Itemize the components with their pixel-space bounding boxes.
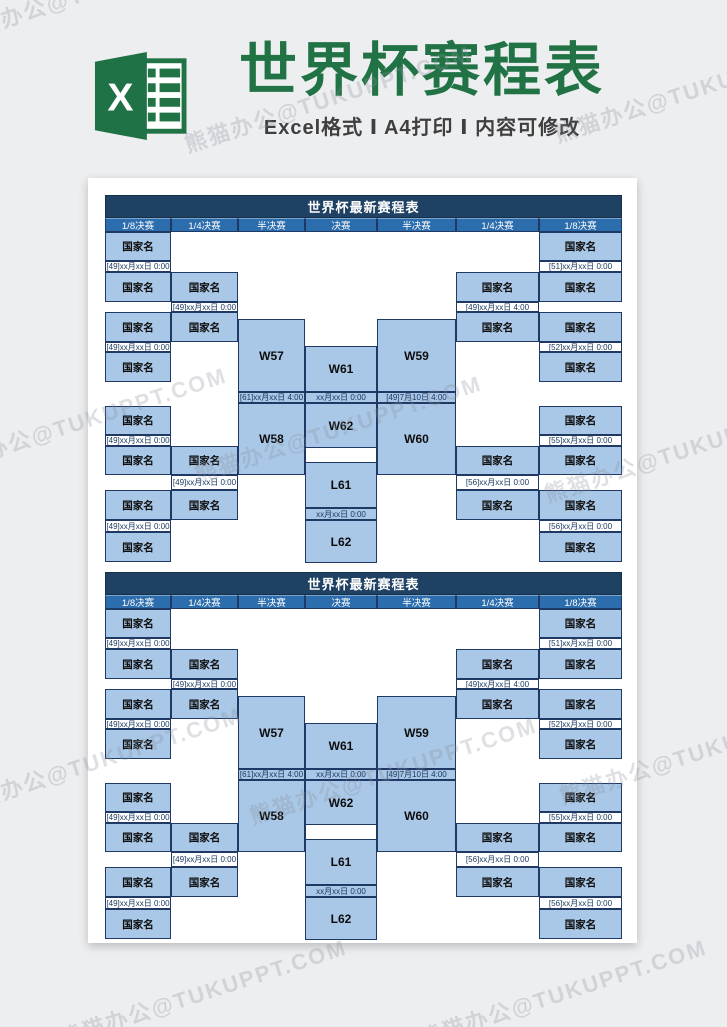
watermark: 熊猫办公@TUKUPPT.COM bbox=[415, 930, 711, 1027]
l62-cell: L62 bbox=[305, 520, 377, 563]
team-cell: 国家名 bbox=[539, 783, 622, 812]
match-date: [61]xx月xx日 4:00 bbox=[238, 769, 305, 780]
team-cell: 国家名 bbox=[539, 232, 622, 261]
match-date: [51]xx月xx日 0:00 bbox=[539, 638, 622, 649]
match-date: [55]xx月xx日 0:00 bbox=[539, 435, 622, 446]
team-cell: 国家名 bbox=[539, 312, 622, 342]
w62-cell: W62 bbox=[305, 780, 377, 825]
w60-cell: W60 bbox=[377, 780, 456, 852]
round-header-sf-left: 半决赛 bbox=[238, 218, 305, 232]
match-date: [49]xx月xx日 0:00 bbox=[105, 719, 171, 729]
round-header-final: 决赛 bbox=[305, 218, 377, 232]
team-cell: 国家名 bbox=[456, 867, 539, 897]
match-date: xx月xx日 0:00 bbox=[305, 769, 377, 780]
team-cell: 国家名 bbox=[171, 867, 238, 897]
team-cell: 国家名 bbox=[171, 446, 238, 475]
match-date: [49]xx月xx日 0:00 bbox=[105, 261, 171, 272]
bracket-table: 世界杯最新赛程表 1/8决赛 1/4决赛 半决赛 决赛 半决赛 1/4决赛 1/… bbox=[105, 195, 622, 565]
match-date: [49]xx月xx日 0:00 bbox=[105, 897, 171, 909]
page-title: 世界杯赛程表 bbox=[222, 38, 622, 105]
team-cell: 国家名 bbox=[539, 689, 622, 719]
round-header-r16-left: 1/8决赛 bbox=[105, 595, 171, 609]
watermark: 熊猫办公@TUKUPPT.COM bbox=[55, 930, 351, 1027]
match-date: [61]xx月xx日 4:00 bbox=[238, 392, 305, 403]
round-header-qf-left: 1/4决赛 bbox=[171, 595, 238, 609]
match-date: [56]xx月xx日 0:00 bbox=[456, 475, 539, 490]
team-cell: 国家名 bbox=[456, 689, 539, 719]
spacer-cell bbox=[305, 825, 377, 839]
round-header-sf-left: 半决赛 bbox=[238, 595, 305, 609]
round-header-sf-right: 半决赛 bbox=[377, 595, 456, 609]
team-cell: 国家名 bbox=[105, 446, 171, 475]
w58-cell: W58 bbox=[238, 780, 305, 852]
team-cell: 国家名 bbox=[105, 823, 171, 852]
w61-cell: W61 bbox=[305, 346, 377, 392]
w61-cell: W61 bbox=[305, 723, 377, 769]
w58-cell: W58 bbox=[238, 403, 305, 475]
team-cell: 国家名 bbox=[171, 823, 238, 852]
team-cell: 国家名 bbox=[539, 609, 622, 638]
team-cell: 国家名 bbox=[456, 823, 539, 852]
banner: X 世界杯赛程表 Excel格式 Ⅰ A4打印 Ⅰ 内容可修改 bbox=[0, 0, 727, 178]
match-date: [56]xx月xx日 0:00 bbox=[456, 852, 539, 867]
team-cell: 国家名 bbox=[105, 649, 171, 679]
round-header-qf-right: 1/4决赛 bbox=[456, 218, 539, 232]
round-header-sf-right: 半决赛 bbox=[377, 218, 456, 232]
spacer-cell bbox=[305, 448, 377, 462]
team-cell: 国家名 bbox=[539, 867, 622, 897]
team-cell: 国家名 bbox=[539, 446, 622, 475]
match-date: [49]xx月xx日 0:00 bbox=[105, 435, 171, 446]
team-cell: 国家名 bbox=[171, 490, 238, 520]
team-cell: 国家名 bbox=[105, 532, 171, 562]
match-date: [52]xx月xx日 0:00 bbox=[539, 719, 622, 729]
round-header-qf-left: 1/4决赛 bbox=[171, 218, 238, 232]
match-date: [49]7月10日 4:00 bbox=[377, 392, 456, 403]
round-header-r16-left: 1/8决赛 bbox=[105, 218, 171, 232]
bracket-title: 世界杯最新赛程表 bbox=[105, 195, 622, 218]
schedule-table-2: 世界杯最新赛程表 1/8决赛 1/4决赛 半决赛 决赛 半决赛 1/4决赛 1/… bbox=[105, 572, 622, 942]
team-cell: 国家名 bbox=[171, 689, 238, 719]
match-date: [49]xx月xx日 0:00 bbox=[171, 852, 238, 867]
match-date: [49]xx月xx日 4:00 bbox=[456, 302, 539, 312]
template-preview-page: X 世界杯赛程表 Excel格式 Ⅰ A4打印 Ⅰ 内容可修改 世界杯最新赛程表… bbox=[0, 0, 727, 1027]
team-cell: 国家名 bbox=[105, 609, 171, 638]
match-date: xx月xx日 0:00 bbox=[305, 885, 377, 897]
team-cell: 国家名 bbox=[105, 783, 171, 812]
excel-x-letter: X bbox=[107, 77, 133, 120]
team-cell: 国家名 bbox=[456, 312, 539, 342]
team-cell: 国家名 bbox=[456, 446, 539, 475]
match-date: [49]xx月xx日 0:00 bbox=[171, 679, 238, 689]
w60-cell: W60 bbox=[377, 403, 456, 475]
team-cell: 国家名 bbox=[539, 352, 622, 382]
team-cell: 国家名 bbox=[105, 689, 171, 719]
match-date: [51]xx月xx日 0:00 bbox=[539, 261, 622, 272]
team-cell: 国家名 bbox=[171, 312, 238, 342]
team-cell: 国家名 bbox=[105, 909, 171, 939]
team-cell: 国家名 bbox=[456, 649, 539, 679]
round-header-qf-right: 1/4决赛 bbox=[456, 595, 539, 609]
excel-icon: X bbox=[93, 50, 187, 142]
match-date: [49]xx月xx日 0:00 bbox=[105, 638, 171, 649]
w57-cell: W57 bbox=[238, 696, 305, 769]
match-date: xx月xx日 0:00 bbox=[305, 508, 377, 520]
l61-cell: L61 bbox=[305, 839, 377, 885]
team-cell: 国家名 bbox=[105, 406, 171, 435]
team-cell: 国家名 bbox=[105, 272, 171, 302]
team-cell: 国家名 bbox=[105, 490, 171, 520]
w59-cell: W59 bbox=[377, 319, 456, 392]
round-header-final: 决赛 bbox=[305, 595, 377, 609]
match-date: [49]xx月xx日 0:00 bbox=[105, 342, 171, 352]
team-cell: 国家名 bbox=[105, 352, 171, 382]
l61-cell: L61 bbox=[305, 462, 377, 508]
team-cell: 国家名 bbox=[539, 272, 622, 302]
team-cell: 国家名 bbox=[539, 532, 622, 562]
match-date: xx月xx日 0:00 bbox=[305, 392, 377, 403]
match-date: [49]xx月xx日 0:00 bbox=[105, 520, 171, 532]
match-date: [56]xx月xx日 0:00 bbox=[539, 520, 622, 532]
schedule-table-1: 世界杯最新赛程表 1/8决赛 1/4决赛 半决赛 决赛 半决赛 1/4决赛 1/… bbox=[105, 195, 622, 565]
team-cell: 国家名 bbox=[539, 823, 622, 852]
team-cell: 国家名 bbox=[539, 909, 622, 939]
team-cell: 国家名 bbox=[171, 272, 238, 302]
team-cell: 国家名 bbox=[456, 490, 539, 520]
team-cell: 国家名 bbox=[105, 867, 171, 897]
round-header-r16-right: 1/8决赛 bbox=[539, 595, 622, 609]
team-cell: 国家名 bbox=[105, 312, 171, 342]
w57-cell: W57 bbox=[238, 319, 305, 392]
bracket-title: 世界杯最新赛程表 bbox=[105, 572, 622, 595]
match-date: [49]xx月xx日 4:00 bbox=[456, 679, 539, 689]
round-header-r16-right: 1/8决赛 bbox=[539, 218, 622, 232]
w59-cell: W59 bbox=[377, 696, 456, 769]
l62-cell: L62 bbox=[305, 897, 377, 940]
team-cell: 国家名 bbox=[171, 649, 238, 679]
team-cell: 国家名 bbox=[456, 272, 539, 302]
match-date: [56]xx月xx日 0:00 bbox=[539, 897, 622, 909]
bracket-table: 世界杯最新赛程表 1/8决赛 1/4决赛 半决赛 决赛 半决赛 1/4决赛 1/… bbox=[105, 572, 622, 942]
page-subtitle: Excel格式 Ⅰ A4打印 Ⅰ 内容可修改 bbox=[222, 111, 622, 140]
team-cell: 国家名 bbox=[105, 232, 171, 261]
team-cell: 国家名 bbox=[539, 729, 622, 759]
team-cell: 国家名 bbox=[105, 729, 171, 759]
team-cell: 国家名 bbox=[539, 490, 622, 520]
match-date: [55]xx月xx日 0:00 bbox=[539, 812, 622, 823]
team-cell: 国家名 bbox=[539, 406, 622, 435]
match-date: [52]xx月xx日 0:00 bbox=[539, 342, 622, 352]
match-date: [49]xx月xx日 0:00 bbox=[171, 475, 238, 490]
team-cell: 国家名 bbox=[539, 649, 622, 679]
match-date: [49]7月10日 4:00 bbox=[377, 769, 456, 780]
w62-cell: W62 bbox=[305, 403, 377, 448]
match-date: [49]xx月xx日 0:00 bbox=[171, 302, 238, 312]
match-date: [49]xx月xx日 0:00 bbox=[105, 812, 171, 823]
excel-sheet-preview: 世界杯最新赛程表 1/8决赛 1/4决赛 半决赛 决赛 半决赛 1/4决赛 1/… bbox=[88, 178, 637, 943]
